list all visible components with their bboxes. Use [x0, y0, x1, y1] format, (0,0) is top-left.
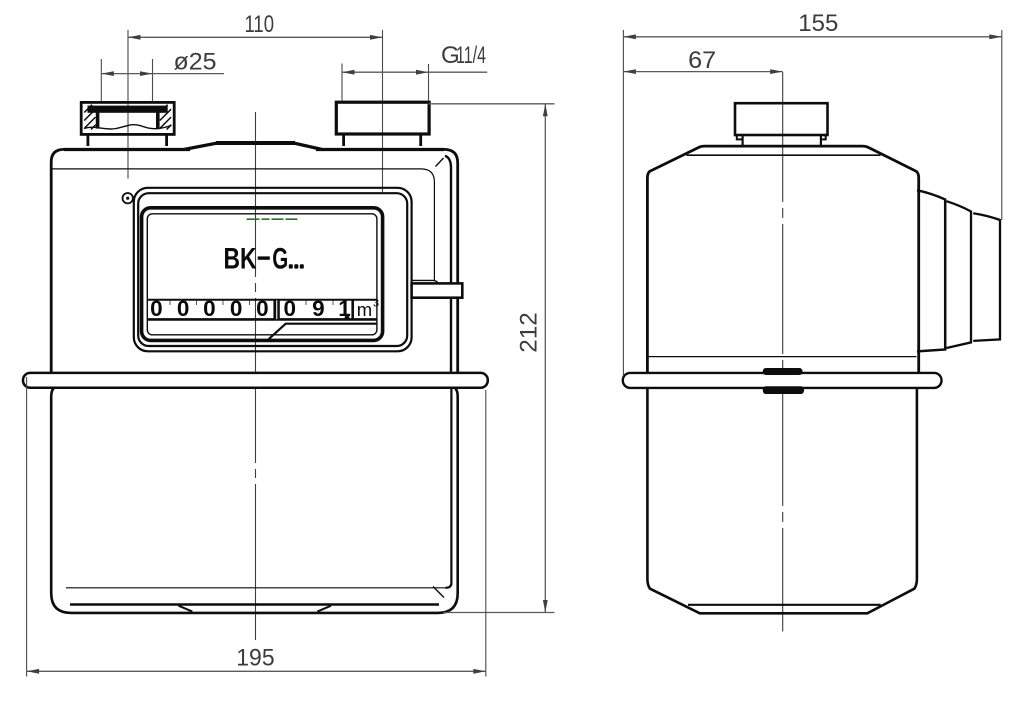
- svg-text:155: 155: [798, 10, 838, 37]
- svg-text:ø25: ø25: [174, 48, 217, 75]
- svg-text:0: 0: [150, 296, 163, 321]
- svg-text:G: G: [272, 243, 288, 276]
- svg-text:m: m: [357, 299, 372, 320]
- svg-text:110: 110: [245, 11, 275, 38]
- svg-text:0: 0: [284, 296, 297, 321]
- svg-text:0: 0: [256, 296, 269, 321]
- svg-text:0: 0: [230, 296, 243, 321]
- svg-text:67: 67: [688, 47, 716, 74]
- svg-text:0: 0: [177, 296, 190, 321]
- svg-text:11/4: 11/4: [456, 42, 486, 69]
- svg-text:195: 195: [236, 645, 274, 672]
- svg-text:9: 9: [312, 296, 325, 321]
- svg-text:BK: BK: [224, 243, 257, 276]
- svg-text:0: 0: [203, 296, 216, 321]
- svg-text:3: 3: [373, 298, 379, 310]
- svg-text:212: 212: [516, 312, 543, 353]
